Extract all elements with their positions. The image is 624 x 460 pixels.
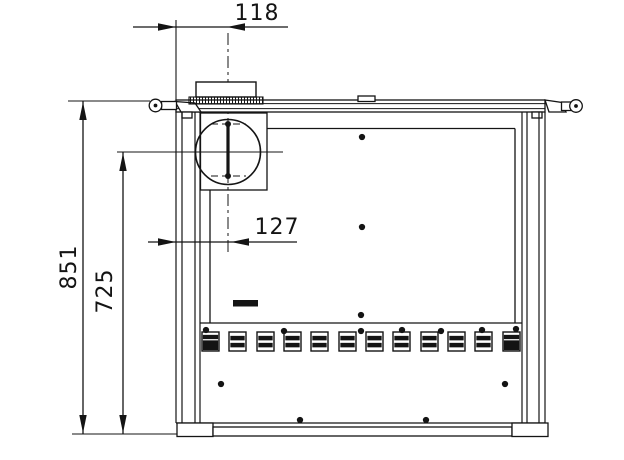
vent-louver: [505, 336, 519, 339]
vent-louver: [259, 337, 272, 340]
vent-louver: [341, 337, 354, 340]
vent-louver: [477, 344, 490, 347]
vent-louver: [313, 344, 326, 347]
side-walls: [176, 112, 545, 423]
vent-slot: [229, 332, 246, 351]
dimension-label-118: 118: [235, 1, 280, 26]
screws: [204, 135, 519, 423]
vent-slot: [257, 332, 274, 351]
data-plate-slot: [233, 300, 258, 307]
flue-collar: [189, 82, 263, 104]
base-plinth: [177, 423, 548, 437]
screw-dot: [204, 328, 209, 333]
rear-panel: [200, 113, 522, 323]
vent-louver: [313, 337, 326, 340]
vent-louver-solid: [204, 341, 218, 350]
screw-dot: [359, 313, 364, 318]
vent-louver: [368, 344, 381, 347]
screw-dot: [360, 135, 365, 140]
dimension-label-851: 851: [57, 245, 82, 290]
vent-louver: [368, 337, 381, 340]
arrowhead-left: [158, 238, 176, 246]
vent-strip: [202, 332, 520, 351]
base-bar: [213, 427, 512, 436]
screw-dot: [480, 328, 485, 333]
vent-louver: [395, 344, 408, 347]
vent-louver: [450, 337, 463, 340]
vent-louver: [423, 344, 436, 347]
dimension-851: 851: [57, 101, 180, 434]
vent-louver: [450, 344, 463, 347]
dimension-725: 725: [93, 152, 283, 434]
vent-louver: [231, 337, 244, 340]
vent-slot: [475, 332, 492, 351]
screw-dot: [219, 382, 224, 387]
vent-louver: [286, 344, 299, 347]
screw-dot: [400, 328, 405, 333]
stove-rear-elevation-drawing: 118 127 851 725: [0, 0, 624, 460]
vent-louver: [204, 336, 218, 339]
dimension-label-725: 725: [93, 269, 118, 314]
right-foot: [512, 423, 548, 437]
screw-dot: [439, 329, 444, 334]
arrowhead-right: [231, 238, 249, 246]
screw-dot: [298, 418, 303, 423]
dimension-127: 127: [148, 215, 300, 246]
vent-slot: [284, 332, 301, 351]
vent-slot: [448, 332, 465, 351]
screw-dot: [360, 225, 365, 230]
vent-slot: [339, 332, 356, 351]
arrowhead-left: [158, 23, 176, 31]
vent-louver: [231, 344, 244, 347]
vent-louver: [286, 337, 299, 340]
screw-dot: [359, 329, 364, 334]
arrowhead-up: [79, 102, 86, 120]
vent-louver: [341, 344, 354, 347]
vent-slot: [366, 332, 383, 351]
screw-dot: [282, 329, 287, 334]
dimension-label-127: 127: [255, 215, 300, 240]
vent-slot: [311, 332, 328, 351]
vent-louver-solid: [505, 341, 519, 350]
arrowhead-up: [119, 153, 126, 171]
screw-dot: [503, 382, 508, 387]
vent-slot: [421, 332, 438, 351]
left-foot: [177, 423, 213, 437]
screw-dot: [514, 327, 519, 332]
arrowhead-down: [79, 415, 86, 433]
technical-drawing-canvas: 118 127 851 725: [0, 0, 624, 460]
vent-louver: [395, 337, 408, 340]
vent-louver: [423, 337, 436, 340]
collar-clamp-plate: [189, 97, 263, 104]
vent-louver: [259, 344, 272, 347]
rail-clip: [358, 96, 375, 102]
vent-louver: [477, 337, 490, 340]
screw-dot: [424, 418, 429, 423]
vent-slot: [393, 332, 410, 351]
arrowhead-down: [119, 415, 126, 433]
